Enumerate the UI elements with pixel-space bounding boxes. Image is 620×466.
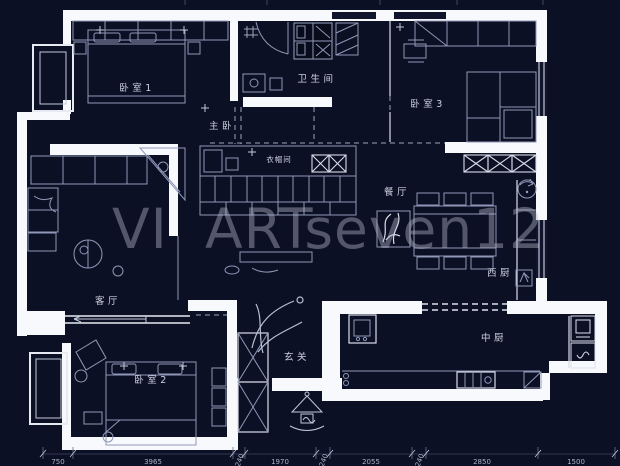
survey-cross-marks — [96, 26, 209, 112]
sink-icon — [349, 315, 376, 343]
floor-drain-icon — [244, 26, 258, 38]
bay-window-bedroom2 — [30, 353, 67, 424]
rotation-circle-icon — [518, 179, 536, 198]
dim-2850: 2850 — [473, 458, 491, 466]
door-arc-icon — [256, 22, 288, 54]
plant-icon — [252, 297, 303, 353]
room-label-dining-room: 餐厅 — [384, 186, 410, 198]
floor-plan-svg: VI ARTseven12 卧室1 主卧 卫生间 卧室3 衣帽间 餐厅 西厨 客… — [0, 0, 620, 466]
desk-unit-3 — [467, 72, 536, 142]
room-label-west-kitchen: 西厨 — [487, 268, 513, 279]
coffee-table — [74, 240, 102, 268]
chair-rotated — [76, 340, 106, 370]
dim-3965: 3965 — [144, 458, 162, 466]
survey-cross-marks — [120, 362, 187, 370]
balcony-sliding-window — [65, 315, 190, 323]
wardrobe-3 — [415, 21, 536, 46]
entry-emblem-icon — [290, 392, 324, 431]
kitchen-furniture — [342, 315, 595, 388]
stove-icon — [457, 372, 495, 388]
room-label-living-room: 客厅 — [95, 295, 121, 307]
stool-icon — [516, 270, 532, 286]
room-label-master-bedroom: 主卧 — [209, 120, 235, 132]
dim-240-b: 240 — [318, 453, 330, 466]
sink-icon — [243, 74, 282, 92]
top-ticks — [185, 0, 543, 5]
window-right-upper — [536, 62, 547, 116]
cross-mark — [396, 23, 404, 31]
x-cabinets — [312, 155, 536, 172]
room-label-bathroom: 卫生间 — [297, 73, 336, 85]
cross-mark — [248, 148, 256, 156]
foyer-furniture — [238, 297, 324, 432]
room-label-chinese-kitchen: 中厨 — [481, 332, 507, 344]
foyer-cabinet — [238, 333, 268, 432]
dim-2055: 2055 — [362, 458, 380, 466]
bedroom-2-furniture — [75, 340, 226, 445]
dim-750: 750 — [51, 458, 64, 466]
watermark-part2: ARTseven12 — [205, 197, 545, 261]
shower-box — [336, 23, 358, 55]
room-label-bedroom-3: 卧室3 — [410, 98, 446, 110]
oven-icon — [571, 316, 595, 341]
room-label-bedroom-2: 卧室2 — [134, 374, 170, 386]
room-label-cloakroom: 衣帽间 — [266, 154, 292, 164]
bedroom-1-furniture — [73, 21, 228, 112]
dim-240-c: 240 — [414, 453, 426, 466]
bedroom-3-furniture — [390, 21, 536, 142]
floor-lamp-icon — [113, 266, 123, 276]
dim-1500: 1500 — [567, 458, 585, 466]
watermark-part1: VI — [112, 197, 168, 261]
floor-plan-canvas: VI ARTseven12 卧室1 主卧 卫生间 卧室3 衣帽间 餐厅 西厨 客… — [0, 0, 620, 466]
dim-1970: 1970 — [271, 458, 289, 466]
room-label-bedroom-1: 卧室1 — [119, 82, 155, 94]
room-label-foyer: 玄关 — [284, 351, 310, 363]
